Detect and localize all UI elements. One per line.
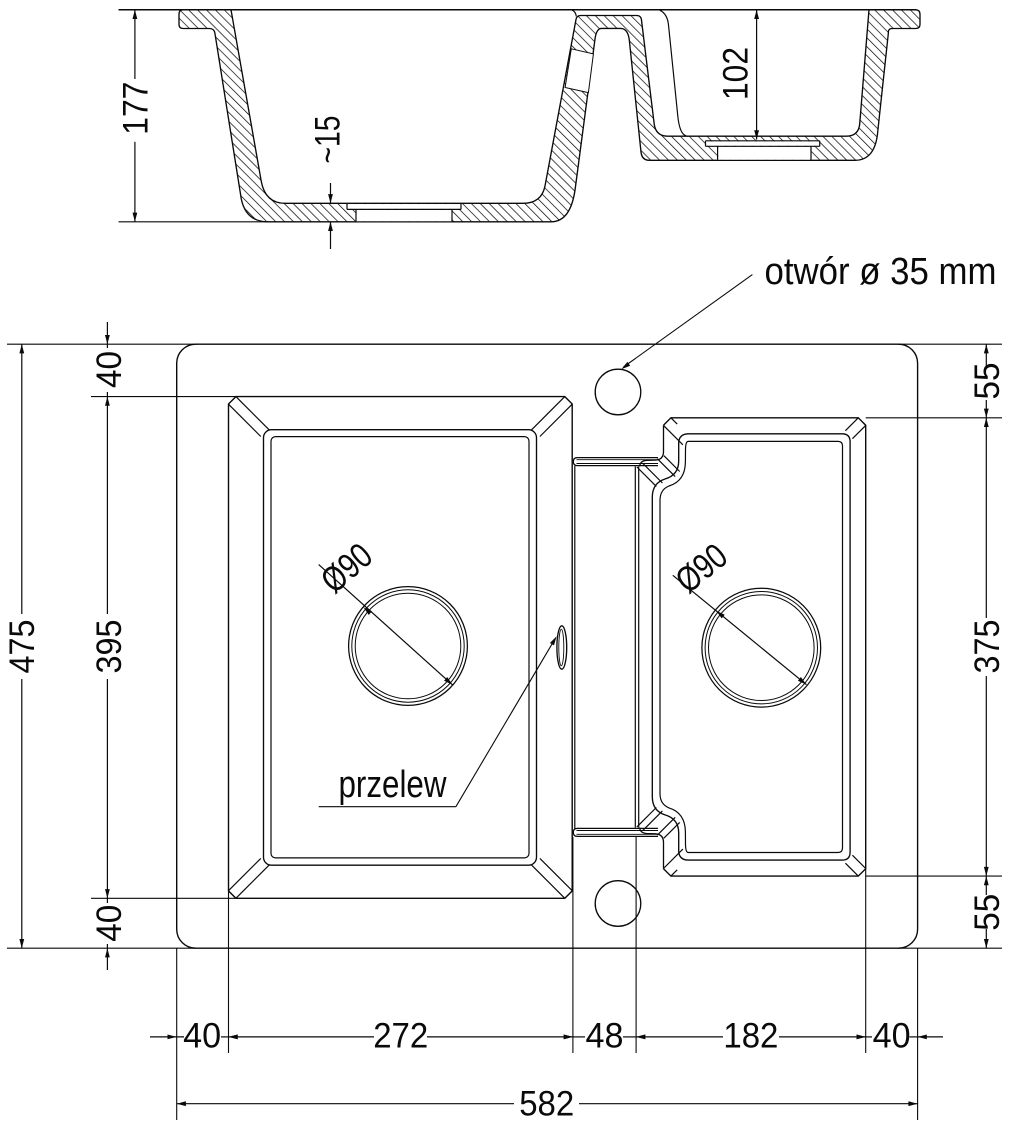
svg-text:48: 48 <box>586 1016 624 1056</box>
svg-text:40: 40 <box>89 351 129 388</box>
svg-text:582: 582 <box>519 1083 574 1123</box>
svg-text:102: 102 <box>716 47 756 100</box>
svg-text:375: 375 <box>967 620 1007 674</box>
svg-text:475: 475 <box>2 620 42 674</box>
svg-text:40: 40 <box>183 1016 221 1056</box>
svg-text:182: 182 <box>723 1016 778 1056</box>
svg-text:177: 177 <box>115 82 155 135</box>
svg-text:55: 55 <box>967 894 1007 931</box>
svg-text:55: 55 <box>967 363 1007 400</box>
svg-text:40: 40 <box>89 905 129 942</box>
svg-text:395: 395 <box>89 620 129 674</box>
svg-text:272: 272 <box>373 1016 428 1056</box>
svg-text:otwór ø 35 mm: otwór ø 35 mm <box>765 251 997 293</box>
svg-text:~15: ~15 <box>308 116 348 164</box>
svg-text:40: 40 <box>873 1016 911 1056</box>
svg-text:przelew: przelew <box>339 764 447 806</box>
